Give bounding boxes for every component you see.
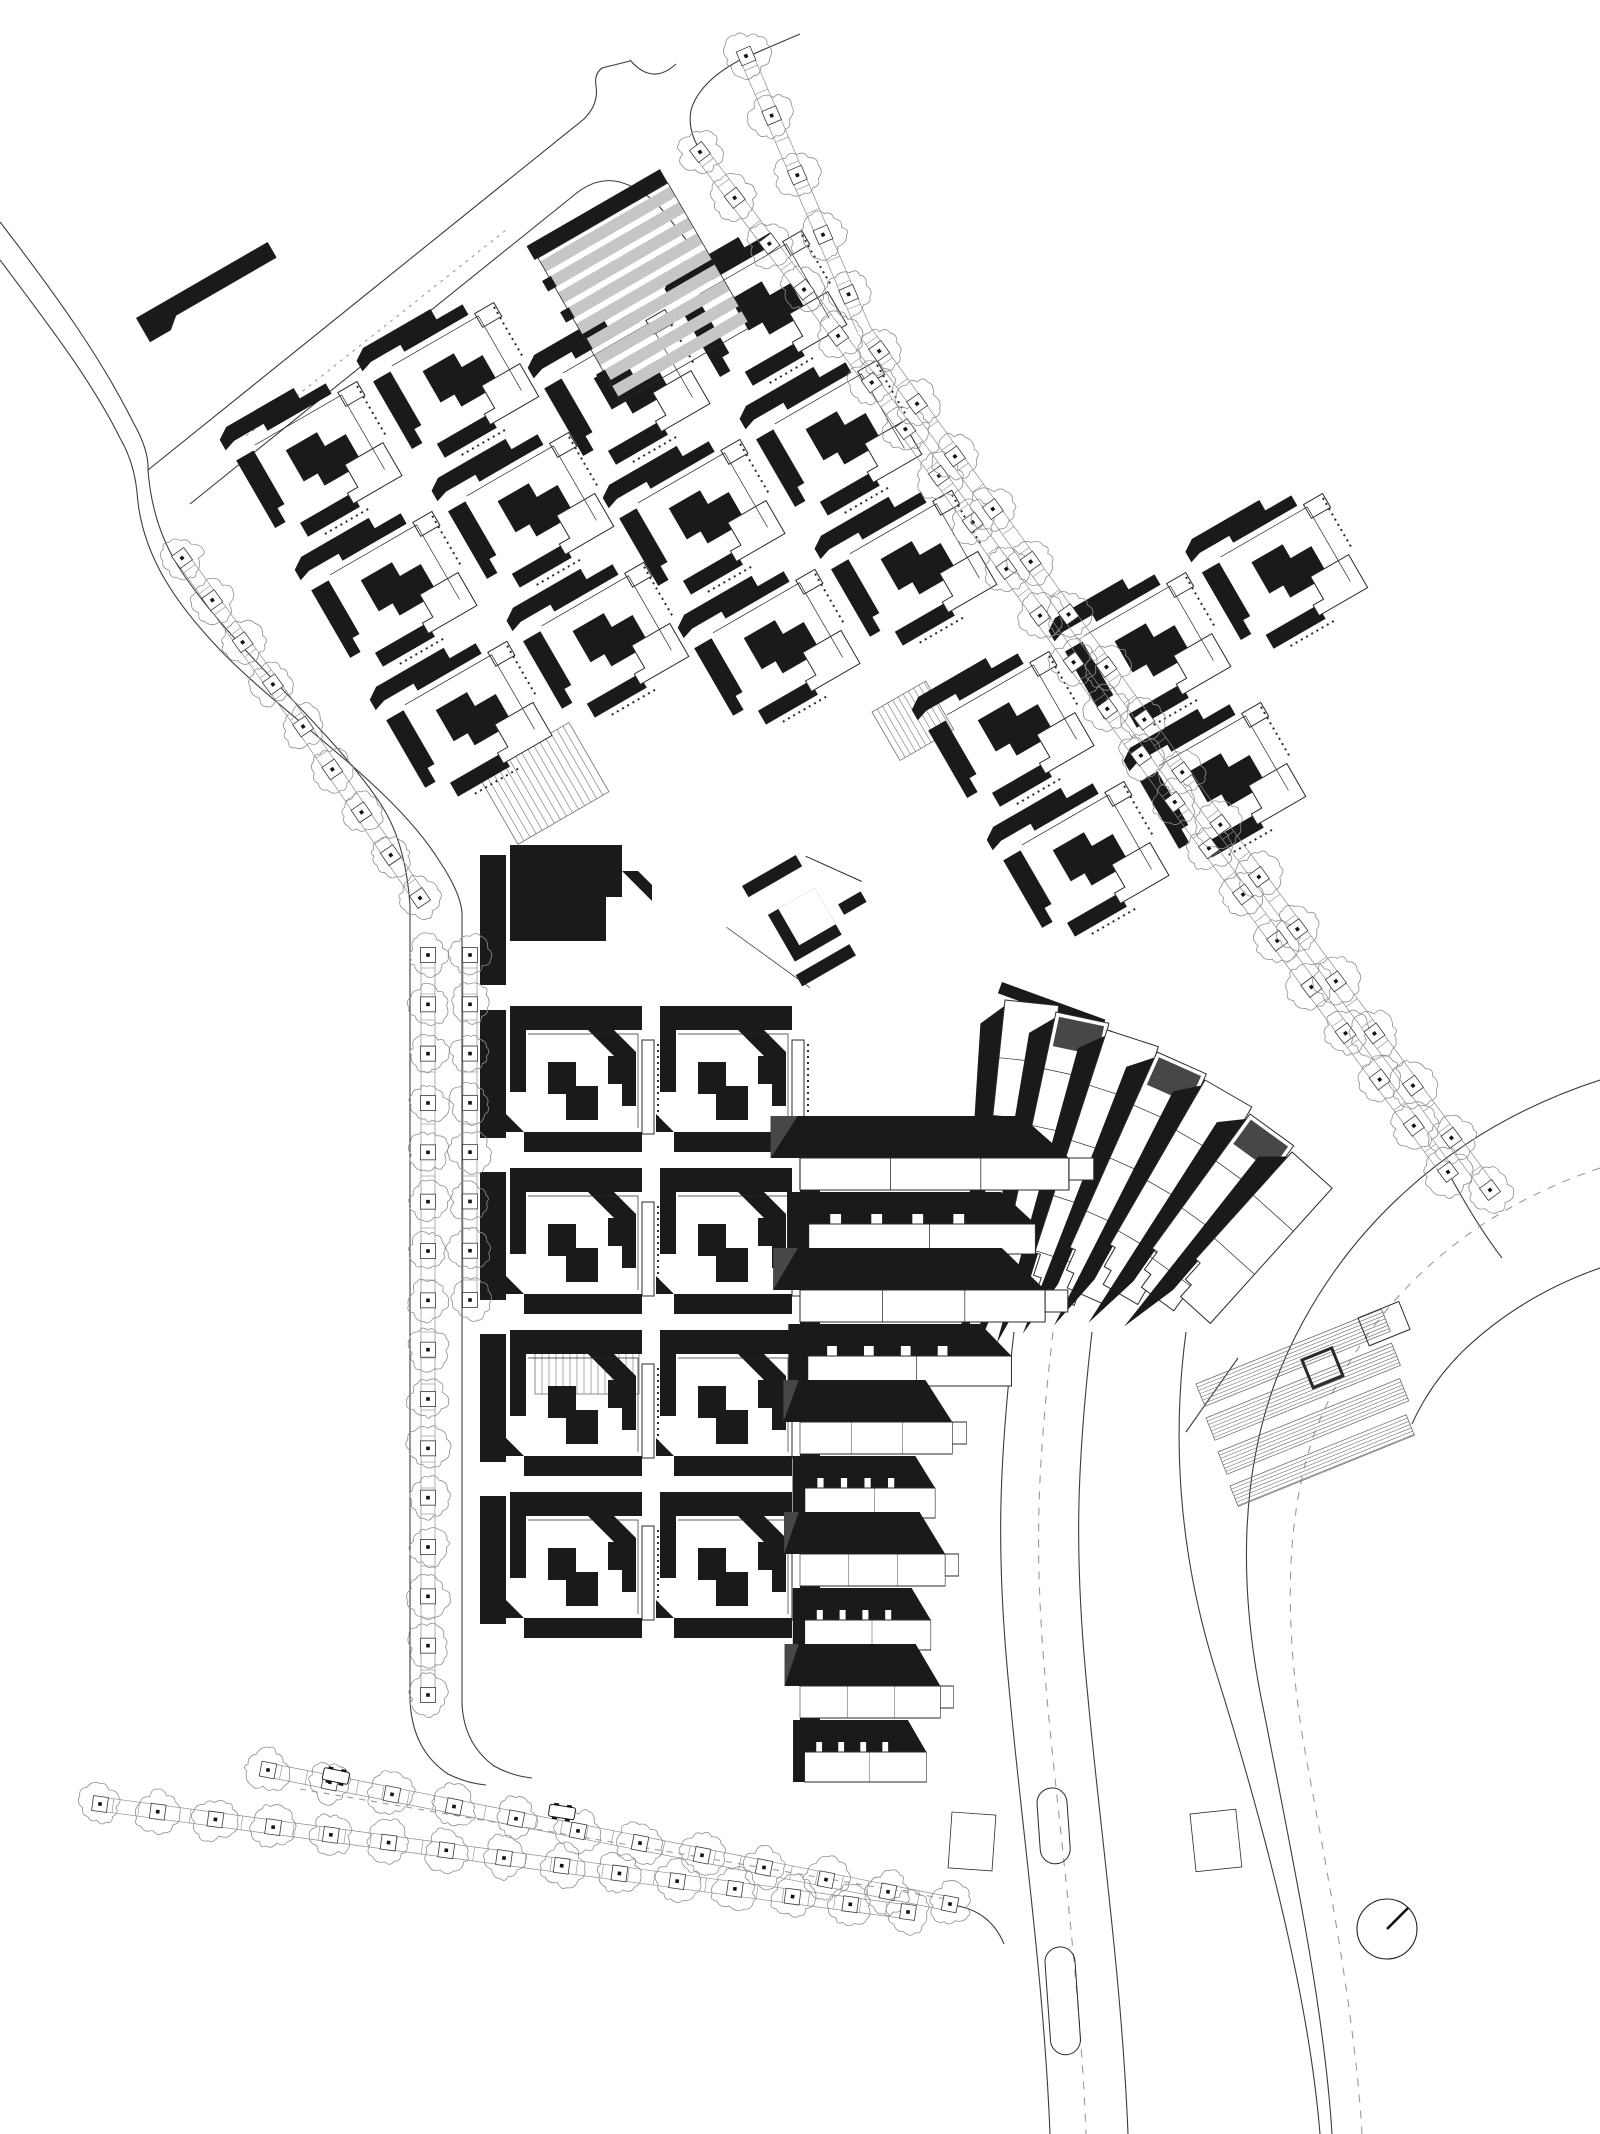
tree-pit (463, 1243, 478, 1258)
north-indicator (1357, 1899, 1417, 1959)
tree-trunk-dot (638, 1841, 642, 1845)
plan-shape (698, 1224, 748, 1282)
tree (399, 875, 441, 919)
plan-shape (642, 1364, 654, 1458)
row-body (800, 1554, 945, 1586)
compass-needle (1387, 1908, 1408, 1929)
tree-pit (689, 141, 710, 162)
road-line (0, 260, 137, 492)
tree-trunk-dot (468, 953, 472, 957)
tree (617, 1822, 663, 1865)
tree-pit (784, 1888, 801, 1905)
tree (1428, 1115, 1477, 1163)
tree (408, 1279, 449, 1323)
tree-trunk-dot (426, 1249, 430, 1253)
black-bar (480, 1496, 506, 1624)
tree-trunk-dot (426, 1348, 430, 1352)
tree (432, 1783, 475, 1826)
tree-trunk-dot (329, 1833, 333, 1837)
tree-trunk-dot (426, 1447, 430, 1451)
tree-pit (944, 446, 965, 467)
plan-shape (660, 1168, 792, 1192)
plan-shape (475, 303, 502, 328)
plan-shape (698, 1386, 748, 1444)
tree (250, 1805, 296, 1848)
plan-shape (721, 439, 748, 464)
tree-trunk-dot (468, 1200, 472, 1204)
south-avenue-lower-row (78, 1782, 929, 1935)
tree (711, 1867, 755, 1911)
black-bar (480, 1172, 506, 1300)
plan-shape (660, 1192, 676, 1254)
row-roof-shadow (788, 1324, 1011, 1356)
tree-pit (1402, 1075, 1423, 1096)
tree-pit (1364, 1023, 1385, 1044)
tree (407, 1574, 451, 1619)
plan-shape (413, 511, 440, 536)
tree-pit (787, 165, 807, 185)
tree (679, 1832, 726, 1875)
tree-trunk-dot (675, 1879, 679, 1883)
plan-shape (608, 1056, 636, 1106)
tree-pit (232, 632, 253, 653)
tree (408, 1623, 447, 1668)
tree-pit (724, 187, 745, 208)
tree (723, 33, 771, 80)
tree-pit (207, 1811, 224, 1828)
plan-shape (510, 1516, 526, 1578)
plan-shape (573, 601, 650, 674)
plan-shape (506, 1600, 524, 1618)
plan-shape (506, 1438, 524, 1456)
black-bar (480, 1334, 506, 1462)
tree-pit (383, 1786, 401, 1804)
tree-pit (1441, 1127, 1462, 1148)
tree-trunk-dot (576, 1829, 580, 1833)
tree-pit (421, 1145, 436, 1160)
plan-shape (548, 1062, 598, 1120)
row-house (793, 1456, 936, 1518)
tree-pit (1301, 977, 1322, 998)
tree-pit (1172, 762, 1193, 783)
tree-pit (463, 1194, 478, 1209)
cblock-cell (506, 1006, 658, 1152)
tree-pit (755, 1859, 773, 1877)
tree-pit (463, 1293, 478, 1308)
tree-pit (445, 1798, 463, 1816)
tree (448, 1132, 492, 1175)
tree-trunk-dot (468, 1249, 472, 1253)
road-line (1179, 1332, 1320, 2134)
tree-pit (463, 1095, 478, 1110)
tree-trunk-dot (426, 1496, 430, 1500)
row-roof-shadow (793, 1588, 931, 1620)
plan-shape (660, 1516, 676, 1578)
plan-shape (498, 471, 575, 544)
plan-shape (1030, 652, 1057, 677)
tree (309, 1814, 352, 1855)
tree-pit (507, 1810, 525, 1828)
tree-pit (693, 1846, 711, 1864)
tree-trunk-dot (948, 1902, 952, 1906)
dmass-cell (510, 845, 652, 941)
tree-pit (421, 997, 436, 1012)
plan-shape (796, 569, 823, 594)
cluster-middle (506, 1006, 808, 1638)
tree-pit (421, 948, 436, 963)
plan-shape (1251, 532, 1328, 605)
plan-shape (1202, 562, 1258, 640)
tree-pit (907, 393, 928, 414)
tree-trunk-dot (762, 1865, 766, 1869)
plan-shape (608, 1380, 636, 1430)
tree (342, 791, 383, 832)
tree-pit (463, 1145, 478, 1160)
tree-pit (380, 845, 401, 866)
tree-pit (726, 1880, 743, 1897)
tree (409, 1528, 449, 1568)
tree-pit (421, 1244, 436, 1259)
row-house (787, 1192, 1035, 1254)
plan-shape (510, 1006, 642, 1030)
tree (1469, 1167, 1514, 1214)
road-line (952, 1905, 1004, 1944)
plan-shape (669, 478, 746, 551)
plan-shape (608, 1542, 636, 1592)
tree-trunk-dot (514, 1817, 518, 1821)
lone-bar (136, 242, 282, 342)
tree (408, 1328, 449, 1372)
plan-shape (1190, 741, 1267, 814)
tree (222, 620, 267, 664)
tree-pit (322, 759, 343, 780)
tree (408, 1231, 445, 1268)
cblock-cell (506, 1492, 658, 1638)
plan-shape (698, 1548, 748, 1606)
road-line (300, 1789, 952, 1900)
tree (249, 662, 294, 707)
tree-pit (553, 1857, 570, 1874)
plan-shape (806, 399, 883, 472)
tree (1424, 1147, 1473, 1198)
tree-pit (421, 1293, 436, 1308)
tree-trunk-dot (468, 1298, 472, 1302)
row-house (793, 1720, 926, 1782)
tree-trunk-dot (426, 1299, 430, 1303)
plan-shape (338, 382, 365, 407)
tree (409, 933, 448, 978)
tree-pit (1369, 1069, 1390, 1090)
outline-rect (1190, 1809, 1242, 1871)
plan-shape (660, 1006, 792, 1030)
tree-trunk-dot (848, 1902, 852, 1906)
plan-shape (881, 529, 958, 602)
tree (710, 173, 756, 221)
row-end (1045, 1290, 1068, 1312)
tree-pit (839, 284, 859, 304)
plan-shape (660, 1354, 676, 1416)
tree (425, 1828, 469, 1874)
outline-rect (1358, 1302, 1410, 1346)
row-roof-shadow (771, 1116, 1069, 1158)
site-plan-page (0, 0, 1600, 2134)
tree (677, 131, 723, 174)
tree-pit (421, 1046, 436, 1061)
tree (484, 1834, 527, 1880)
plan-shape (548, 1548, 598, 1606)
tree-trunk-dot (452, 1804, 456, 1808)
tree-trunk-dot (824, 1878, 828, 1882)
tree-trunk-dot (906, 1910, 910, 1914)
tree-pit (631, 1834, 649, 1852)
tree-pit (1020, 551, 1041, 572)
tree (1312, 957, 1360, 1005)
plan-shape (928, 720, 984, 798)
tree-pit (149, 1803, 166, 1820)
tree-trunk-dot (266, 1768, 270, 1772)
tree-pit (1233, 884, 1254, 905)
tree (1324, 1010, 1369, 1055)
cblock-cell (506, 1168, 658, 1314)
tree-pit (842, 1896, 859, 1913)
tree-trunk-dot (271, 1825, 275, 1829)
plan-shape (642, 1526, 654, 1620)
tree (1389, 1061, 1438, 1109)
tree-pit (410, 888, 431, 909)
tree (407, 1379, 449, 1418)
row-end (952, 1422, 966, 1444)
plan-shape (831, 559, 887, 637)
row-house (785, 1644, 954, 1718)
plan-shape (386, 710, 442, 788)
tree-pit (1335, 1023, 1356, 1044)
tree-trunk-dot (426, 1595, 430, 1599)
plan-shape (448, 501, 504, 579)
tree-trunk-dot (426, 1397, 430, 1401)
plan-shape (236, 450, 292, 528)
tree-pit (982, 499, 1003, 520)
tree (895, 379, 940, 426)
tree-pit (421, 1540, 436, 1555)
cluster-northeast (908, 471, 1456, 956)
cblock-cell (506, 1330, 658, 1476)
tree-pit (569, 1822, 587, 1840)
tree (311, 748, 353, 793)
tree (407, 983, 448, 1025)
plan-shape (660, 1330, 792, 1354)
plan-shape (642, 1202, 654, 1296)
tree-trunk-dot (426, 1101, 430, 1105)
row-house (783, 1380, 966, 1454)
plan-shape (506, 1114, 524, 1132)
tree-pit (900, 1904, 917, 1921)
road-line (1290, 1168, 1600, 2134)
plan-shape (548, 1386, 598, 1444)
row-roof-shadow (785, 1644, 941, 1686)
tree (409, 1180, 451, 1222)
plaza-pavilion (713, 833, 895, 1009)
tree-pit (817, 1871, 835, 1889)
tree (930, 1880, 971, 1924)
plan-shape (758, 1542, 786, 1592)
row-body (800, 1686, 940, 1718)
plan-shape (622, 871, 652, 901)
tree-trunk-dot (98, 1802, 102, 1806)
tree-pit (1438, 1162, 1459, 1183)
plan-shape (136, 242, 282, 342)
tree (408, 1132, 448, 1171)
tree (1358, 1055, 1401, 1102)
tree-trunk-dot (468, 1052, 472, 1056)
tree-pit (259, 1761, 277, 1779)
tree (409, 1673, 448, 1718)
plan-shape (506, 1276, 524, 1294)
tree-trunk-dot (444, 1848, 448, 1852)
tree-pit (1325, 971, 1346, 992)
tree-trunk-dot (468, 1150, 472, 1154)
road-line (1246, 1080, 1600, 2134)
tree-trunk-dot (426, 953, 430, 957)
plan-shape (1003, 850, 1059, 928)
row-house (788, 1324, 1011, 1386)
tree-pit (322, 1826, 339, 1843)
plaza-cell (713, 833, 895, 1009)
tree-trunk-dot (426, 1693, 430, 1697)
row-body (800, 1158, 1069, 1190)
row-roof-shadow (793, 1720, 926, 1752)
plan-shape (286, 420, 363, 493)
plan-shape (510, 1192, 526, 1254)
tree-trunk-dot (700, 1853, 704, 1857)
plan-shape (660, 1492, 792, 1516)
tree-trunk-dot (502, 1856, 506, 1860)
tree (409, 1085, 449, 1122)
plan-shape (1242, 702, 1269, 727)
tree-trunk-dot (426, 1151, 430, 1155)
tree-trunk-dot (426, 1644, 430, 1648)
tree-pit (1403, 1115, 1424, 1136)
road-line (1186, 1358, 1238, 1432)
row-roof-shadow (787, 1192, 1035, 1224)
tree-trunk-dot (426, 1545, 430, 1549)
road-line (0, 222, 148, 470)
tree-pit (762, 106, 782, 126)
tree-pit (421, 1441, 436, 1456)
road-line (137, 492, 532, 1778)
plan-shape (423, 341, 500, 414)
mid-avenue-west-row (406, 933, 451, 1718)
row-roof-shadow (783, 1380, 952, 1422)
tree (1286, 964, 1333, 1011)
tree-pit (421, 1096, 436, 1111)
tree-pit (813, 225, 833, 245)
plan-shape (674, 1294, 792, 1314)
plan-shape (1304, 494, 1331, 519)
plan-shape (548, 1224, 598, 1282)
cblock-cell (656, 1168, 808, 1314)
tree-pit (941, 1895, 959, 1913)
plan-shape (758, 1056, 786, 1106)
tree-pit (438, 1842, 455, 1859)
outline-rect (1044, 1946, 1081, 2056)
plan-shape (510, 1030, 526, 1092)
plan-shape (1053, 820, 1130, 893)
outline-rect (948, 1812, 996, 1871)
tree-pit (869, 341, 890, 362)
tree (801, 211, 848, 260)
tree (827, 1884, 870, 1926)
plan-shape (698, 1062, 748, 1120)
tree-pit (265, 1819, 282, 1836)
road-line (630, 60, 676, 74)
plan-shape (1167, 573, 1194, 598)
tree (190, 578, 234, 624)
tree-trunk-dot (791, 1895, 795, 1899)
plan-shape (694, 638, 750, 716)
row-body (800, 1290, 1045, 1322)
tree-trunk-dot (617, 1871, 621, 1875)
tree-pit (611, 1865, 628, 1882)
row-roof-shadow (793, 1456, 936, 1488)
tree-pit (463, 948, 478, 963)
tree-trunk-dot (426, 1200, 430, 1204)
plan-shape (742, 855, 802, 897)
tree-pit (463, 997, 478, 1012)
tree-pit (172, 548, 193, 569)
tree (406, 1426, 451, 1468)
car (548, 1802, 576, 1822)
tree-pit (421, 1589, 436, 1604)
tree (803, 1856, 850, 1900)
plan-shape (361, 550, 438, 623)
abar-cell (136, 242, 282, 342)
tree-pit (421, 1342, 436, 1357)
plan-shape (978, 690, 1055, 763)
tree-pit (1480, 1180, 1501, 1201)
plan-shape (608, 1218, 636, 1268)
tree (410, 1034, 450, 1073)
plan-shape (488, 641, 515, 666)
plan-shape (1105, 781, 1132, 806)
tree (191, 1801, 238, 1842)
tree-pit (929, 465, 950, 486)
tree-trunk-dot (560, 1864, 564, 1868)
tree-pit (463, 1046, 478, 1061)
tree-trunk-dot (213, 1817, 217, 1821)
plan-shape (373, 371, 429, 449)
tree-trunk-dot (468, 1101, 472, 1105)
road-line (1079, 1332, 1128, 2134)
plan-shape (524, 1456, 642, 1476)
tree-trunk-dot (390, 1792, 394, 1796)
tree (1007, 541, 1053, 585)
row-end (945, 1554, 958, 1576)
tree-pit (421, 1392, 436, 1407)
tree-pit (1287, 919, 1308, 940)
row-body (805, 1752, 927, 1782)
road-line (1412, 1268, 1600, 1424)
tree-pit (421, 1194, 436, 1209)
plan-shape (756, 429, 812, 507)
tree (1391, 1102, 1439, 1149)
tree-pit (202, 590, 223, 611)
hatch-area (1206, 1343, 1400, 1440)
plan-shape (524, 1294, 642, 1314)
plan-shape (510, 1492, 642, 1516)
plan-shape (510, 1330, 642, 1354)
row-house (793, 1588, 931, 1650)
tree-pit (380, 1834, 397, 1851)
